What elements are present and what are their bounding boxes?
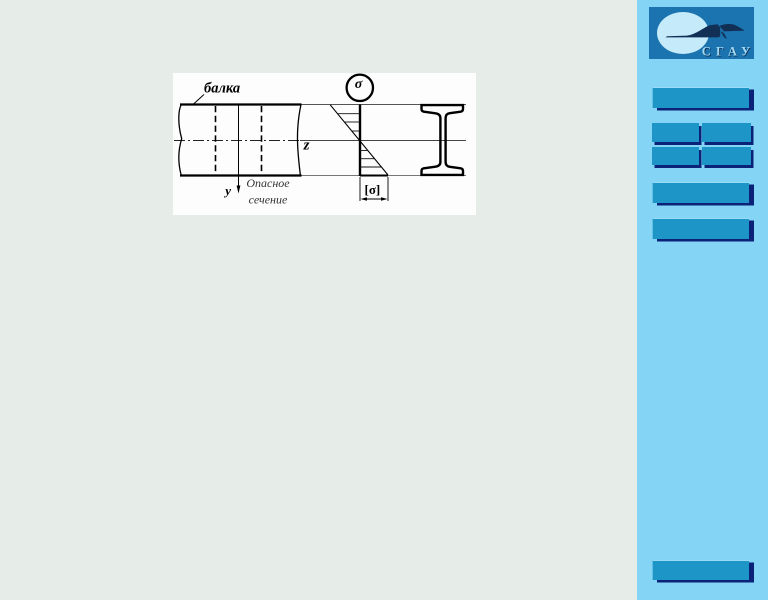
svg-text:σ: σ [355,77,363,92]
svg-text:Опасное: Опасное [246,176,290,190]
svg-text:сечение: сечение [249,193,288,207]
svg-text:y: y [223,183,231,198]
svg-text:СГАУ: СГАУ [702,45,754,59]
svg-text:z: z [303,138,310,154]
svg-text:[σ]: [σ] [365,182,381,197]
svg-text:балка: балка [204,81,240,97]
